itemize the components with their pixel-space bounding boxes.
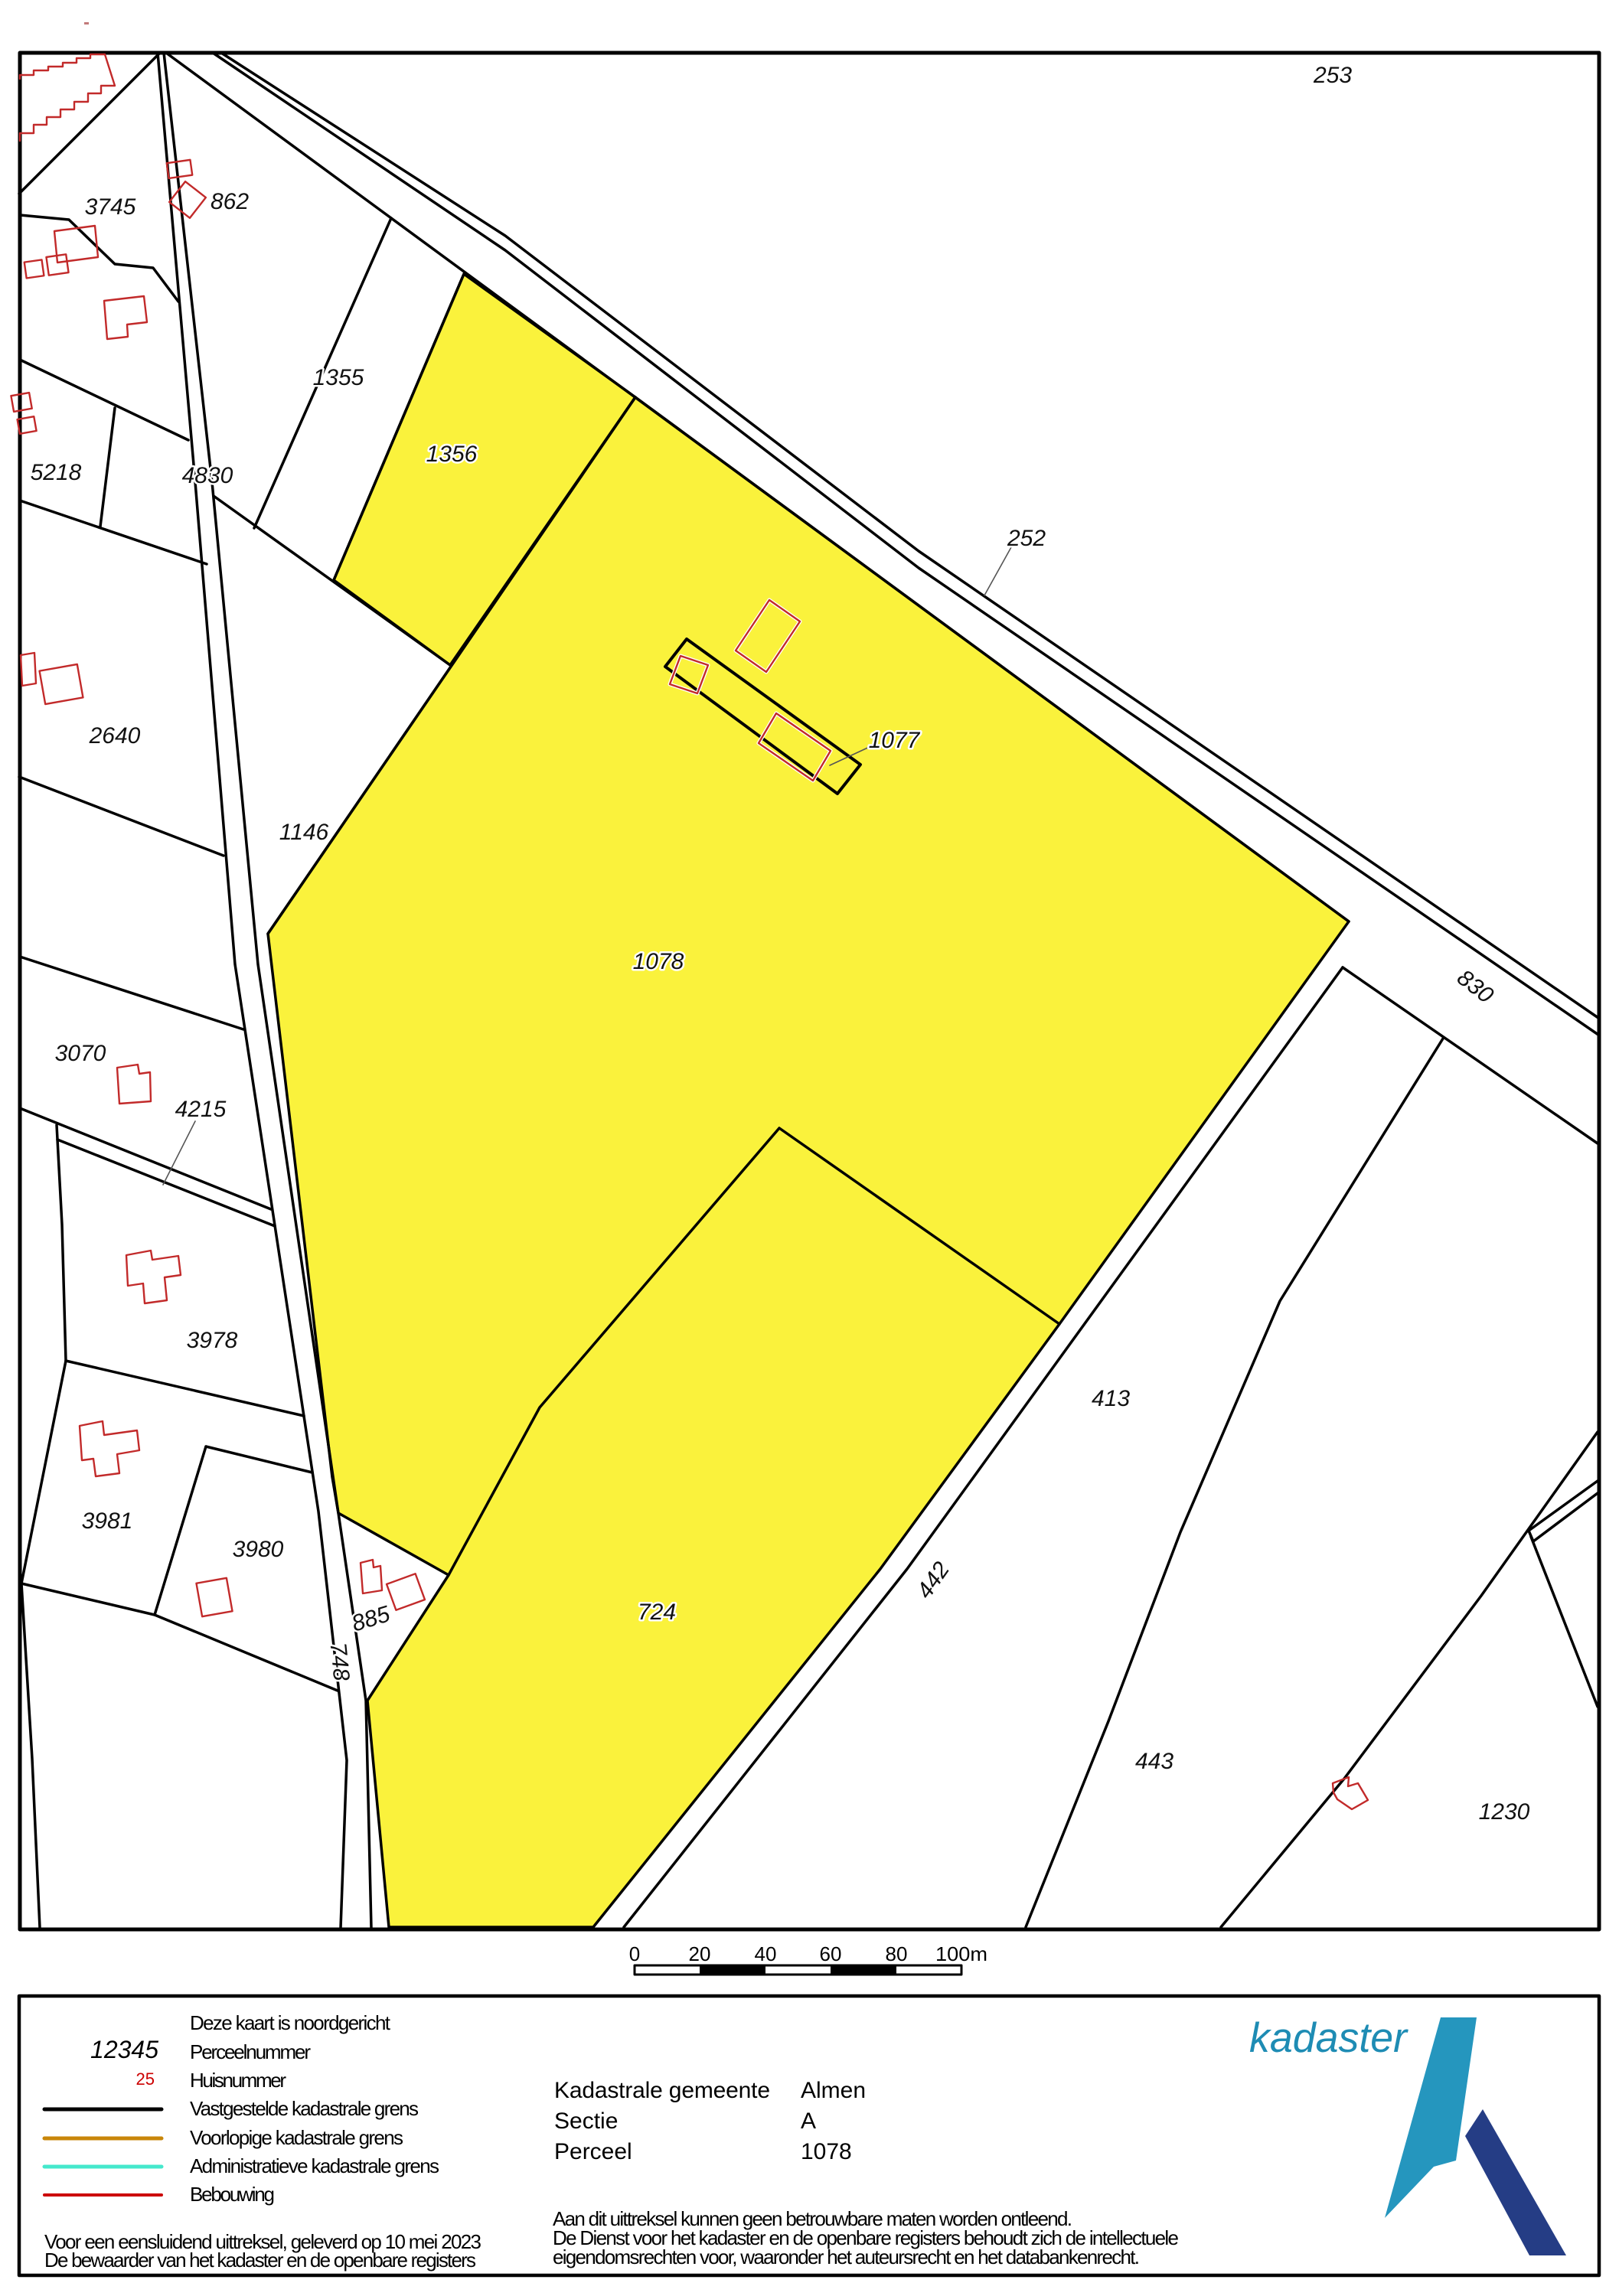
svg-text:Vastgestelde kadastrale grens: Vastgestelde kadastrale grens: [190, 2097, 419, 2120]
svg-text:3978: 3978: [187, 1328, 238, 1353]
svg-text:Kadastrale gemeente: Kadastrale gemeente: [554, 2078, 770, 2103]
svg-text:4215: 4215: [175, 1097, 227, 1122]
svg-text:60: 60: [820, 1942, 842, 1965]
svg-text:12345: 12345: [90, 2036, 158, 2063]
svg-text:862: 862: [211, 189, 249, 214]
svg-text:3980: 3980: [233, 1537, 284, 1562]
svg-text:3745: 3745: [85, 194, 136, 220]
svg-text:4830: 4830: [182, 463, 233, 488]
svg-text:Huisnummer: Huisnummer: [190, 2069, 286, 2092]
svg-text:2640: 2640: [89, 723, 141, 748]
svg-text:25: 25: [136, 2069, 155, 2089]
svg-text:Deze kaart is noordgericht: Deze kaart is noordgericht: [190, 2011, 391, 2034]
svg-text:0: 0: [629, 1942, 640, 1965]
svg-text:1077: 1077: [869, 728, 921, 753]
svg-text:Almen: Almen: [801, 2078, 866, 2103]
svg-text:3070: 3070: [55, 1041, 106, 1066]
svg-text:1078: 1078: [633, 949, 684, 974]
svg-text:Administratieve kadastrale gre: Administratieve kadastrale grens: [190, 2154, 439, 2177]
svg-text:1230: 1230: [1479, 1799, 1530, 1825]
svg-text:1356: 1356: [426, 442, 478, 467]
svg-text:80: 80: [886, 1942, 908, 1965]
svg-text:eigendomsrechten voor, waarond: eigendomsrechten voor, waaronder het aut…: [553, 2245, 1140, 2268]
svg-text:253: 253: [1313, 63, 1352, 88]
svg-text:1078: 1078: [801, 2139, 852, 2164]
svg-text:3981: 3981: [82, 1508, 133, 1534]
svg-text:20: 20: [689, 1942, 711, 1965]
svg-text:Perceelnummer: Perceelnummer: [190, 2040, 311, 2063]
svg-text:Voorlopige kadastrale grens: Voorlopige kadastrale grens: [190, 2126, 403, 2149]
svg-text:A: A: [801, 2108, 816, 2134]
svg-text:413: 413: [1092, 1386, 1130, 1411]
svg-text:40: 40: [755, 1942, 777, 1965]
svg-text:100m: 100m: [935, 1942, 987, 1965]
svg-text:748: 748: [325, 1642, 354, 1683]
svg-text:Bebouwing: Bebouwing: [190, 2183, 275, 2206]
svg-text:252: 252: [1007, 526, 1046, 551]
svg-text:5218: 5218: [31, 460, 82, 485]
svg-text:724: 724: [638, 1600, 676, 1625]
svg-text:kadaster: kadaster: [1249, 2014, 1409, 2061]
svg-text:De bewaarder van het kadaster: De bewaarder van het kadaster en de open…: [44, 2249, 476, 2272]
svg-text:Sectie: Sectie: [554, 2108, 618, 2134]
svg-text:Perceel: Perceel: [554, 2139, 632, 2164]
svg-text:443: 443: [1135, 1749, 1173, 1774]
svg-text:1146: 1146: [279, 820, 329, 845]
svg-text:1355: 1355: [313, 365, 364, 390]
